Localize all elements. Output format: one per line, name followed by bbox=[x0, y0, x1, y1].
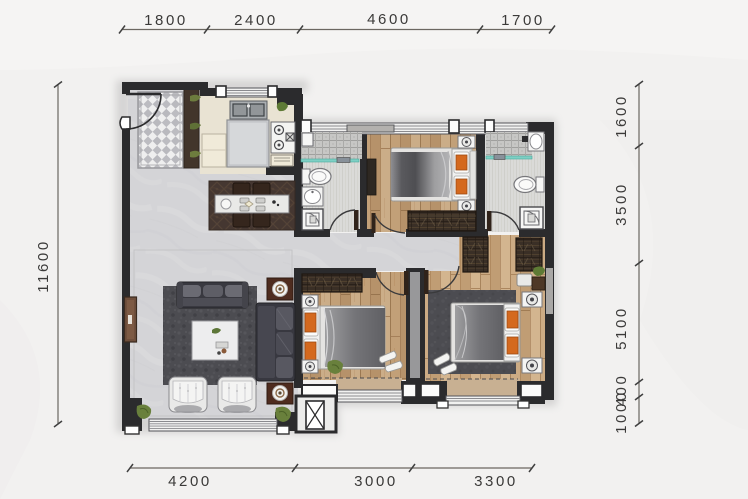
svg-text:1800: 1800 bbox=[144, 12, 188, 29]
svg-text:3500: 3500 bbox=[613, 182, 630, 226]
svg-text:1700: 1700 bbox=[501, 12, 545, 29]
svg-text:2400: 2400 bbox=[234, 12, 278, 29]
svg-text:4200: 4200 bbox=[168, 473, 212, 490]
svg-text:3000: 3000 bbox=[354, 473, 398, 490]
svg-text:1600: 1600 bbox=[613, 94, 630, 138]
svg-text:4600: 4600 bbox=[367, 11, 411, 28]
svg-text:11600: 11600 bbox=[35, 239, 52, 293]
svg-text:1000: 1000 bbox=[613, 390, 630, 434]
svg-text:5100: 5100 bbox=[613, 306, 630, 350]
svg-text:3300: 3300 bbox=[474, 473, 518, 490]
